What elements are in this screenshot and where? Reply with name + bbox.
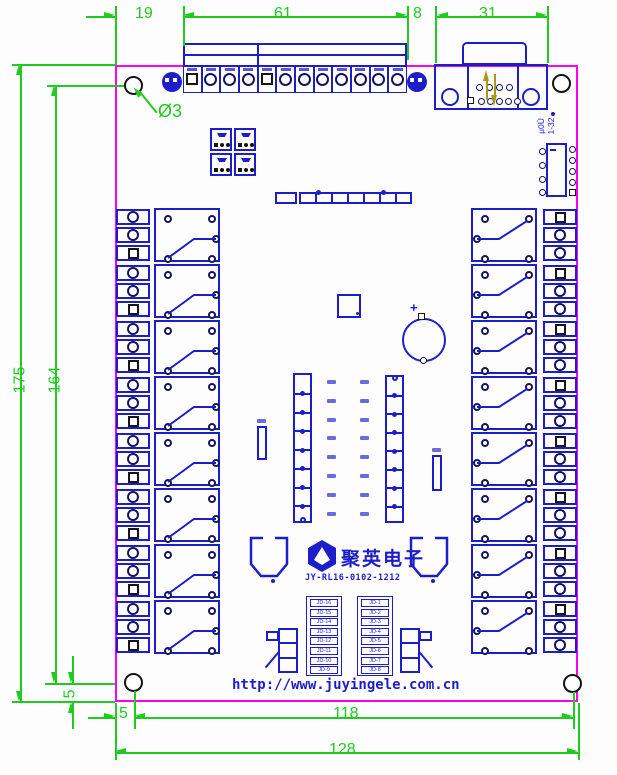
jumper-mark	[217, 133, 227, 137]
driver-ic-notch	[392, 375, 398, 381]
relay-terminal-cell	[543, 265, 577, 281]
relay-terminal-cell	[116, 545, 150, 561]
relay-contact-line	[156, 602, 222, 656]
left-relay-bank	[116, 208, 222, 656]
relay-body	[471, 264, 537, 318]
relay-terminal-cell	[543, 413, 577, 429]
jumper-pad	[244, 168, 248, 172]
relay-terminal-circle	[127, 491, 139, 503]
db9-pin-1	[467, 97, 474, 104]
jd-table-row: JD-11	[310, 647, 338, 655]
relay-terminal-cell	[543, 489, 577, 505]
dim-line	[134, 691, 136, 729]
relay-terminal-cell	[116, 377, 150, 393]
relay-contact-line	[156, 266, 222, 320]
jd-table-row: JD-15	[310, 609, 338, 617]
relay-body	[471, 488, 537, 542]
relay-group	[471, 208, 577, 262]
center-label	[327, 436, 336, 440]
relay-terminal-cell	[116, 525, 150, 541]
relay-terminal-square	[555, 436, 566, 447]
relay-terminal-cell	[116, 507, 150, 523]
relay-group	[116, 376, 222, 430]
dim-arrow	[68, 702, 74, 713]
db9-pin	[514, 98, 521, 105]
dim-arrow	[16, 64, 22, 75]
dim-arrow	[562, 713, 573, 719]
relay-contact-line	[473, 434, 539, 488]
dim-arrow	[437, 12, 448, 18]
relay-terminal-cell	[116, 357, 150, 373]
relay-terminal-square	[555, 380, 566, 391]
relay-terminal-cell	[543, 545, 577, 561]
terminal-cell	[239, 66, 258, 93]
dim-terminal-strip-width: 61	[272, 6, 294, 22]
terminal-cell	[351, 66, 370, 93]
relay-group	[116, 264, 222, 318]
driver-ic-pin-bump	[392, 393, 397, 398]
transistor-right-body	[400, 628, 420, 673]
dip8-pin	[569, 157, 576, 164]
part-number: JY-RL16-0102-1212	[305, 573, 401, 583]
center-label	[360, 380, 369, 384]
relay-group	[116, 208, 222, 262]
dim-arrow	[536, 12, 547, 18]
relay-body	[154, 376, 220, 430]
relay-terminal-square	[555, 548, 566, 559]
relay-contact-line	[473, 378, 539, 432]
db9-pin	[506, 84, 513, 91]
db9-shell	[462, 42, 527, 65]
led-row-head	[275, 192, 297, 204]
terminal-circle	[391, 73, 404, 86]
jumper-cell	[210, 128, 232, 151]
dim-arrow	[396, 12, 407, 18]
capacitor-polarity: +	[410, 300, 418, 315]
transistor-left-tab	[266, 631, 279, 641]
jumper-pad	[226, 143, 230, 147]
terminal-strip-divider-h	[184, 54, 406, 56]
center-label	[360, 436, 369, 440]
dim-line	[578, 703, 580, 760]
relay-body	[154, 320, 220, 374]
center-label	[327, 512, 336, 516]
dip8-ic-body	[546, 143, 567, 197]
relay-terminal-circle	[127, 547, 139, 559]
relay-terminal-cell	[116, 245, 150, 261]
relay-terminal-cell	[543, 301, 577, 317]
relay-terminal-cell	[116, 637, 150, 653]
db9-arrow-down	[494, 74, 496, 96]
relay-terminal-circle	[554, 397, 566, 409]
jd-table-row: JD-1	[361, 599, 389, 607]
relay-body	[471, 376, 537, 430]
relay-group	[471, 488, 577, 542]
terminal-circle	[372, 73, 385, 86]
relay-terminal-cell	[543, 283, 577, 299]
driver-ic-pin-bump	[392, 412, 397, 417]
terminal-cell	[220, 66, 239, 93]
mounting-hole-bottom-left	[124, 673, 143, 692]
relay-group	[116, 432, 222, 486]
relay-group	[471, 544, 577, 598]
relay-terminal-cell	[116, 451, 150, 467]
terminal-label	[281, 68, 291, 71]
relay-group	[471, 432, 577, 486]
led-dot-2	[381, 190, 386, 195]
relay-group	[471, 320, 577, 374]
relay-terminal-square	[128, 528, 139, 539]
terminal-circle	[298, 73, 311, 86]
db9-screw-left	[441, 88, 459, 106]
driver-ic-pin-bump	[300, 466, 305, 471]
relay-terminal-circle	[554, 229, 566, 241]
jd-table-left: JD-16JD-15JD-14JD-13JD-12JD-11JD-10JD-9	[306, 596, 342, 676]
relay-terminal-circle	[127, 285, 139, 297]
relay-terminal-cell	[116, 339, 150, 355]
relay-terminal-square	[555, 324, 566, 335]
led-segment-divider	[347, 193, 349, 203]
driver-ic-left	[293, 373, 312, 523]
relay-terminal-cell	[116, 619, 150, 635]
relay-terminal-cell	[116, 209, 150, 225]
relay-terminal-circle	[127, 435, 139, 447]
relay-group	[116, 488, 222, 542]
jd-table-row: JD-4	[361, 628, 389, 636]
relay-terminal-square	[128, 360, 139, 371]
relay-terminal-cell	[116, 395, 150, 411]
driver-ic-pin-bump	[300, 429, 305, 434]
relay-terminal-cell	[543, 451, 577, 467]
dim-arrow	[51, 672, 57, 683]
jd-table-row: JD-13	[310, 628, 338, 636]
terminal-label	[225, 68, 235, 71]
relay-group	[471, 264, 577, 318]
relay-terminal-circle	[554, 247, 566, 259]
terminal-cell	[314, 66, 333, 93]
right-relay-bank	[471, 208, 577, 656]
relay-contact-line	[473, 490, 539, 544]
transistor-left-div2	[279, 657, 297, 659]
jumper-pad	[226, 168, 230, 172]
jd-table-row: JD-8	[361, 666, 389, 674]
jd-table-row: JD-6	[361, 647, 389, 655]
relay-terminal-circle	[554, 583, 566, 595]
relay-terminal-cell	[543, 601, 577, 617]
jumper-mark	[241, 133, 251, 137]
driver-ic-pin-bump	[300, 485, 305, 490]
terminal-label	[187, 68, 197, 71]
relay-terminal-circle	[554, 303, 566, 315]
electrolytic-capacitor	[402, 318, 446, 362]
brand-logo-icon	[305, 539, 339, 573]
relay-terminal-cell	[543, 245, 577, 261]
relay-terminal-circle	[127, 603, 139, 615]
dip8-pin	[569, 168, 576, 175]
relay-terminal-cell	[116, 469, 150, 485]
jd-table-row: JD-9	[310, 666, 338, 674]
relay-terminal-cell	[116, 601, 150, 617]
driver-ic-pin-bump	[392, 486, 397, 491]
terminal-cell	[258, 66, 277, 93]
jumper-pad	[214, 168, 218, 172]
dim-line	[547, 6, 549, 63]
strip-end-cap-left	[162, 72, 182, 92]
dim-line	[12, 701, 115, 703]
relay-terminal-circle	[554, 415, 566, 427]
dim-hole-offset-horizontal: 5	[117, 706, 130, 722]
relay-contact-line	[156, 490, 222, 544]
relay-terminal-circle	[127, 565, 139, 577]
dim-line	[134, 717, 573, 719]
ic-label-line1: μ0Ū	[536, 118, 546, 134]
terminal-cell	[332, 66, 351, 93]
relay-terminal-cell	[116, 581, 150, 597]
relay-group	[471, 376, 577, 430]
dim-line	[115, 752, 578, 754]
relay-terminal-cell	[543, 637, 577, 653]
jd-table-row: JD-5	[361, 637, 389, 645]
led-segment-divider	[379, 193, 381, 203]
relay-body	[471, 544, 537, 598]
terminal-strip-divider-v	[257, 44, 259, 66]
mounting-hole-bottom-right	[563, 674, 582, 693]
dip8-pin	[539, 162, 546, 169]
relay-terminal-cell	[543, 525, 577, 541]
dim-hole-span-horizontal: 118	[331, 706, 361, 722]
dim-line	[12, 64, 115, 66]
db9-pin	[496, 84, 503, 91]
relay-terminal-cell	[543, 321, 577, 337]
terminal-circle	[316, 73, 329, 86]
terminal-cell	[183, 66, 202, 93]
relay-terminal-cell	[116, 265, 150, 281]
jumper-pad	[250, 168, 254, 172]
bracket-footprint-left	[246, 534, 292, 586]
relay-terminal-cell	[543, 377, 577, 393]
dip8-pin	[539, 189, 546, 196]
transistor-right-div2	[401, 657, 419, 659]
terminal-cell	[388, 66, 407, 93]
pcb-dimension-drawing: 19 61 8 31 175 164 5 5 118 128 Ø3 μ0Ū 1-…	[0, 0, 617, 775]
center-label	[360, 512, 369, 516]
relay-body	[154, 264, 220, 318]
dip8-pin-1	[569, 189, 576, 196]
led-segment-divider	[331, 193, 333, 203]
relay-terminal-square	[128, 416, 139, 427]
db9-pin	[496, 98, 503, 105]
driver-ic-pin-bump	[392, 430, 397, 435]
center-label	[360, 418, 369, 422]
center-label	[327, 493, 336, 497]
relay-contact-line	[156, 378, 222, 432]
terminal-circle	[204, 73, 217, 86]
led-segment-divider	[363, 193, 365, 203]
center-label	[360, 493, 369, 497]
relay-terminal-cell	[543, 563, 577, 579]
relay-terminal-circle	[554, 621, 566, 633]
crystal-dot	[356, 312, 359, 315]
jd-table-row: JD-2	[361, 609, 389, 617]
jumper-pad	[220, 168, 224, 172]
jd-table-row: JD-16	[310, 599, 338, 607]
center-label	[327, 455, 336, 459]
relay-body	[471, 600, 537, 654]
dim-arrow	[68, 672, 74, 683]
relay-terminal-square	[128, 304, 139, 315]
relay-terminal-square	[555, 212, 566, 223]
relay-terminal-cell	[543, 469, 577, 485]
transistor-right-tab	[419, 631, 432, 641]
dip8-pin	[569, 179, 576, 186]
dim-arrow	[134, 713, 145, 719]
relay-group	[116, 320, 222, 374]
relay-terminal-cell	[116, 227, 150, 243]
relay-group	[116, 544, 222, 598]
jumper-pad	[220, 143, 224, 147]
relay-contact-line	[473, 210, 539, 264]
relay-terminal-circle	[127, 341, 139, 353]
jd-table-row: JD-10	[310, 657, 338, 665]
dim-line	[45, 683, 115, 685]
relay-terminal-cell	[543, 209, 577, 225]
transistor-right-div1	[401, 642, 419, 644]
driver-ic-pin-bump	[392, 504, 397, 509]
jumper-cell	[234, 153, 256, 176]
relay-terminal-circle	[127, 621, 139, 633]
relay-body	[154, 544, 220, 598]
mounting-hole-top-right	[552, 74, 571, 93]
dim-line	[20, 64, 22, 702]
center-label	[327, 418, 336, 422]
resistor-left	[257, 426, 267, 460]
terminal-circle	[354, 73, 367, 86]
terminal-label	[337, 68, 347, 71]
relay-terminal-cell	[116, 489, 150, 505]
relay-group	[116, 600, 222, 654]
center-label	[327, 399, 336, 403]
relay-terminal-cell	[543, 227, 577, 243]
terminal-cell	[202, 66, 221, 93]
relay-contact-line	[473, 546, 539, 600]
dim-arrow	[115, 748, 126, 754]
relay-body	[154, 432, 220, 486]
db9-pin	[505, 98, 512, 105]
relay-body	[471, 432, 537, 486]
relay-contact-line	[473, 602, 539, 656]
relay-terminal-circle	[554, 527, 566, 539]
relay-terminal-cell	[543, 619, 577, 635]
jd-table-row: JD-7	[361, 657, 389, 665]
relay-terminal-circle	[127, 509, 139, 521]
capacitor-positive-pad	[418, 313, 425, 320]
relay-terminal-circle	[127, 229, 139, 241]
relay-contact-line	[156, 210, 222, 264]
dim-line	[47, 85, 124, 87]
terminal-label	[243, 68, 253, 71]
relay-terminal-circle	[127, 323, 139, 335]
relay-terminal-circle	[127, 453, 139, 465]
relay-contact-line	[156, 434, 222, 488]
capacitor-negative-pad	[420, 357, 427, 364]
dim-arrow	[51, 85, 57, 96]
dip8-pin	[539, 148, 546, 155]
relay-body	[471, 208, 537, 262]
driver-ic-pin-bump	[300, 448, 305, 453]
relay-body	[154, 600, 220, 654]
relay-terminal-square	[555, 492, 566, 503]
dim-arrow	[567, 748, 578, 754]
center-label	[360, 474, 369, 478]
terminal-label	[393, 68, 403, 71]
terminal-label	[318, 68, 328, 71]
dim-line	[183, 16, 407, 18]
jumper-pad	[238, 143, 242, 147]
resistor-right-label	[432, 448, 441, 452]
transistor-left-div1	[279, 642, 297, 644]
jumper-pad	[214, 143, 218, 147]
dim-line	[437, 16, 547, 18]
jd-table-right: JD-1JD-2JD-3JD-4JD-5JD-6JD-7JD-8	[357, 596, 393, 676]
relay-contact-line	[473, 266, 539, 320]
relay-terminal-circle	[127, 211, 139, 223]
relay-terminal-circle	[554, 453, 566, 465]
relay-terminal-circle	[127, 379, 139, 391]
relay-terminal-circle	[554, 359, 566, 371]
dim-arrow	[183, 12, 194, 18]
dim-line	[115, 6, 117, 65]
db9-pin	[478, 98, 485, 105]
driver-ic-pin-bump	[300, 410, 305, 415]
dim-strip-db9-gap: 8	[411, 6, 424, 22]
led-dot-1	[316, 190, 321, 195]
relay-terminal-cell	[116, 563, 150, 579]
jumper-pad	[238, 168, 242, 172]
resistor-left-label	[257, 419, 266, 423]
transistor-left-body	[278, 628, 298, 673]
relay-terminal-square	[128, 640, 139, 651]
relay-terminal-square	[128, 248, 139, 259]
driver-ic-pin-bump	[300, 504, 305, 509]
terminal-cell	[295, 66, 314, 93]
jumper-pad	[250, 143, 254, 147]
relay-terminal-cell	[116, 283, 150, 299]
db9-pin	[476, 84, 483, 91]
db9-arrow-up	[486, 78, 488, 100]
center-label	[360, 399, 369, 403]
relay-terminal-circle	[554, 471, 566, 483]
dim-arrow	[104, 12, 115, 18]
relay-terminal-circle	[554, 639, 566, 651]
hole-diameter-label: Ø3	[156, 102, 184, 120]
dim-line	[573, 692, 575, 729]
relay-terminal-circle	[127, 267, 139, 279]
dim-arrow	[104, 713, 115, 719]
db9-arrow-up-head	[483, 70, 489, 81]
relay-contact-line	[473, 322, 539, 376]
terminal-strip-cells	[183, 66, 407, 93]
jumper-cell	[234, 128, 256, 151]
jumper-mark	[217, 158, 227, 162]
relay-terminal-circle	[554, 509, 566, 521]
relay-terminal-cell	[543, 507, 577, 523]
bracket-footprint-right	[406, 534, 452, 586]
center-label	[327, 380, 336, 384]
driver-ic-notch	[300, 517, 306, 523]
relay-contact-line	[156, 322, 222, 376]
relay-terminal-circle	[554, 565, 566, 577]
jumper-mark	[241, 158, 251, 162]
